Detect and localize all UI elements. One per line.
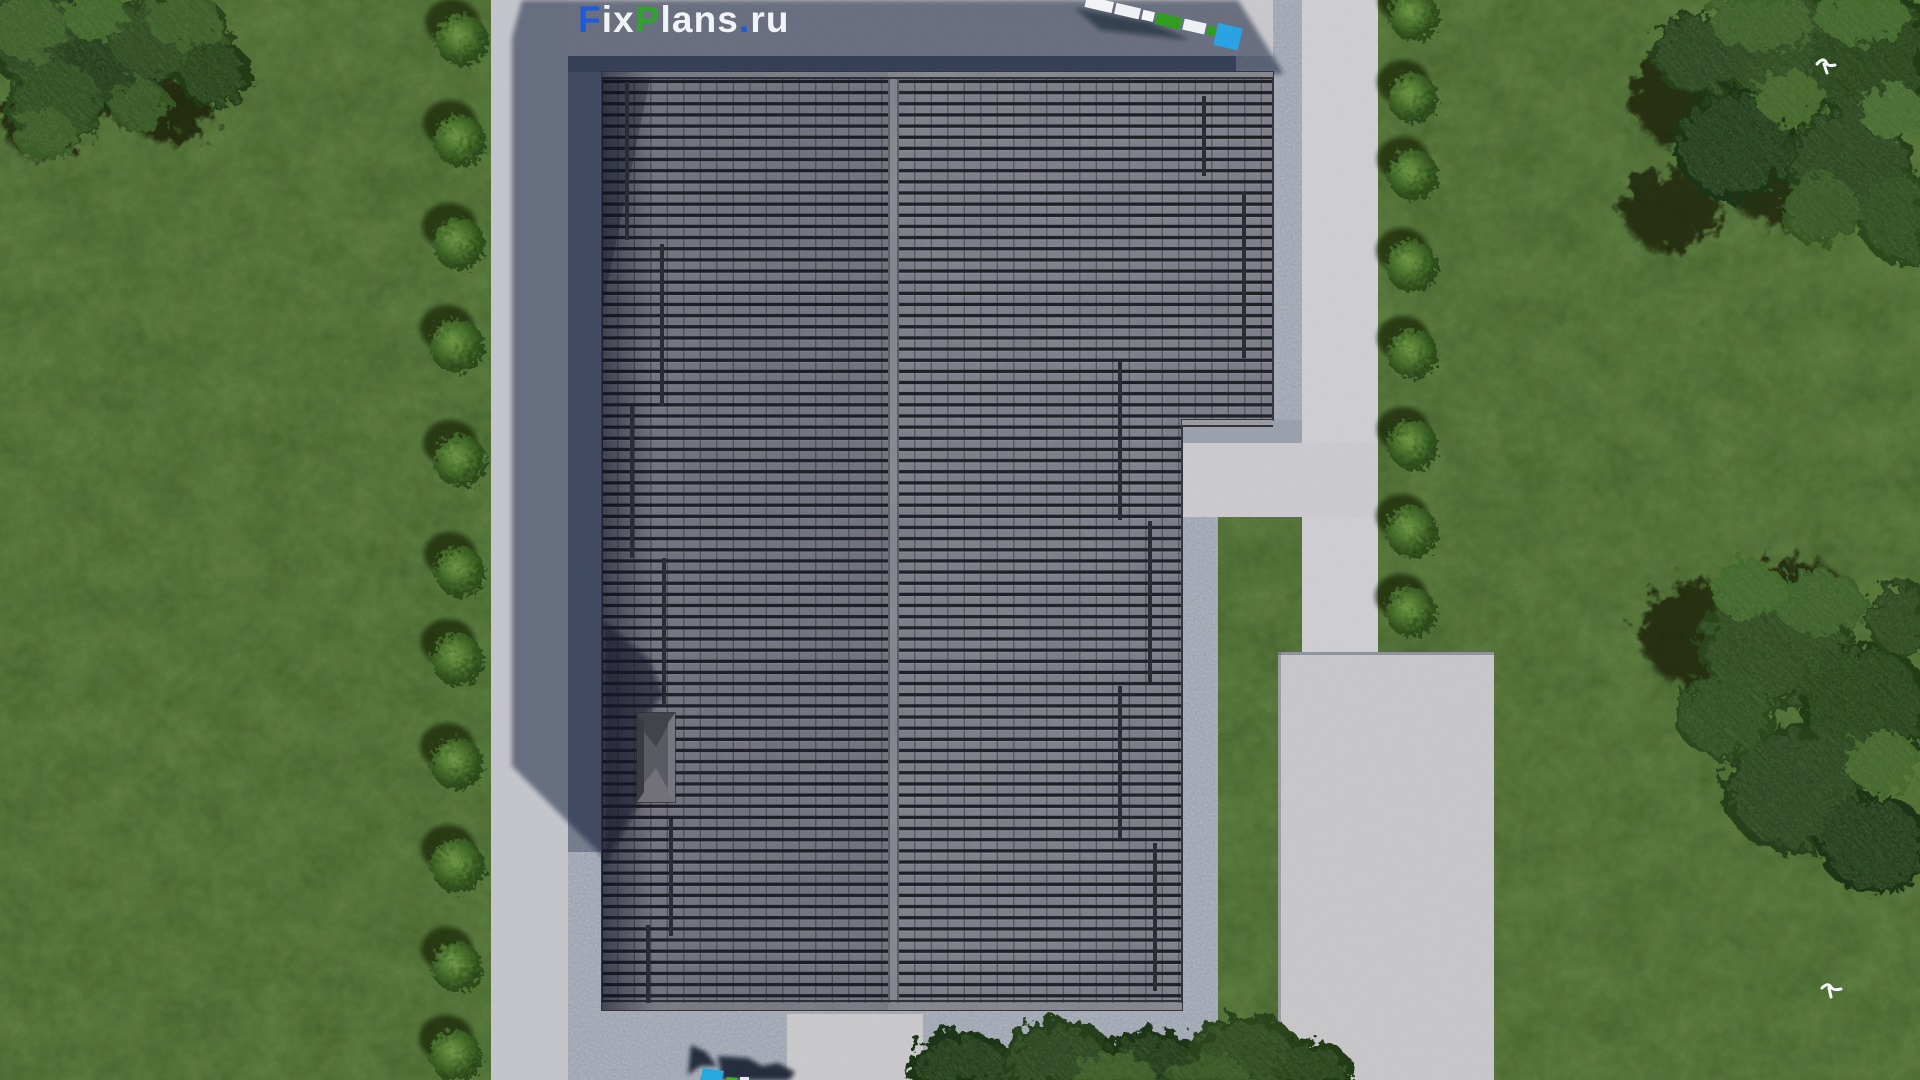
svg-text:FixPlans.ru: FixPlans.ru <box>578 0 790 40</box>
